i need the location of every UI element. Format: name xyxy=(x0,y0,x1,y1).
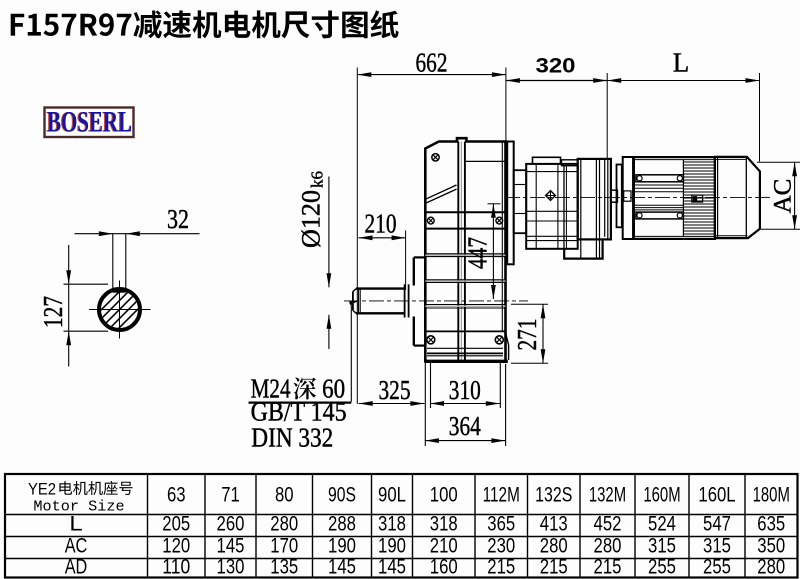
svg-text:320: 320 xyxy=(536,54,576,78)
svg-text:145: 145 xyxy=(217,535,245,558)
svg-text:63: 63 xyxy=(167,484,186,507)
svg-text:635: 635 xyxy=(757,513,785,536)
svg-text:AD: AD xyxy=(65,556,88,579)
svg-text:71: 71 xyxy=(221,484,240,507)
svg-text:413: 413 xyxy=(540,513,568,536)
svg-text:318: 318 xyxy=(378,513,406,536)
svg-text:110: 110 xyxy=(162,556,190,579)
svg-text:130: 130 xyxy=(217,556,245,579)
svg-text:288: 288 xyxy=(328,513,356,536)
svg-text:112M: 112M xyxy=(483,484,520,507)
svg-text:215: 215 xyxy=(487,556,515,579)
svg-text:210: 210 xyxy=(430,535,458,558)
svg-text:132S: 132S xyxy=(535,484,572,507)
svg-text:260: 260 xyxy=(217,513,245,536)
svg-text:255: 255 xyxy=(703,556,731,579)
svg-text:547: 547 xyxy=(703,513,731,536)
svg-text:160: 160 xyxy=(430,556,458,579)
svg-text:135: 135 xyxy=(270,556,298,579)
svg-text:350: 350 xyxy=(757,535,785,558)
svg-text:215: 215 xyxy=(594,556,622,579)
svg-text:90L: 90L xyxy=(378,484,406,507)
svg-text:100: 100 xyxy=(430,484,458,507)
svg-text:318: 318 xyxy=(430,513,458,536)
svg-text:205: 205 xyxy=(162,513,190,536)
svg-text:160L: 160L xyxy=(698,484,735,507)
svg-text:32: 32 xyxy=(167,204,189,234)
svg-text:BOSERL: BOSERL xyxy=(47,105,132,138)
svg-text:145: 145 xyxy=(378,556,406,579)
svg-text:325: 325 xyxy=(379,375,411,405)
svg-text:145: 145 xyxy=(328,556,356,579)
svg-text:280: 280 xyxy=(757,556,785,579)
svg-text:120: 120 xyxy=(162,535,190,558)
svg-text:160M: 160M xyxy=(643,484,680,507)
svg-text:447: 447 xyxy=(463,237,493,269)
svg-text:452: 452 xyxy=(594,513,622,536)
svg-text:310: 310 xyxy=(449,375,481,405)
svg-text:662: 662 xyxy=(416,48,448,78)
svg-text:230: 230 xyxy=(487,535,515,558)
svg-text:AC: AC xyxy=(770,179,797,214)
svg-text:524: 524 xyxy=(648,513,676,536)
svg-text:180M: 180M xyxy=(753,484,790,507)
svg-text:L: L xyxy=(673,48,690,78)
svg-text:Ø120: Ø120 xyxy=(296,190,326,248)
svg-text:210: 210 xyxy=(365,209,397,239)
svg-text:271: 271 xyxy=(512,319,542,351)
svg-text:L: L xyxy=(69,513,82,536)
svg-text:215: 215 xyxy=(540,556,568,579)
svg-text:364: 364 xyxy=(449,411,481,441)
svg-text:k6: k6 xyxy=(308,171,327,188)
svg-text:132M: 132M xyxy=(589,484,626,507)
svg-text:280: 280 xyxy=(270,513,298,536)
svg-text:365: 365 xyxy=(487,513,515,536)
svg-text:170: 170 xyxy=(270,535,298,558)
svg-text:80: 80 xyxy=(275,484,294,507)
svg-text:190: 190 xyxy=(378,535,406,558)
svg-text:190: 190 xyxy=(328,535,356,558)
svg-text:DIN 332: DIN 332 xyxy=(251,423,333,453)
svg-text:255: 255 xyxy=(648,556,676,579)
svg-text:315: 315 xyxy=(648,535,676,558)
svg-text:YE2: YE2 xyxy=(28,481,56,499)
svg-text:280: 280 xyxy=(540,535,568,558)
svg-text:127: 127 xyxy=(38,296,68,328)
svg-text:280: 280 xyxy=(594,535,622,558)
svg-text:90S: 90S xyxy=(328,484,356,507)
svg-text:315: 315 xyxy=(703,535,731,558)
svg-text:AC: AC xyxy=(65,535,88,558)
